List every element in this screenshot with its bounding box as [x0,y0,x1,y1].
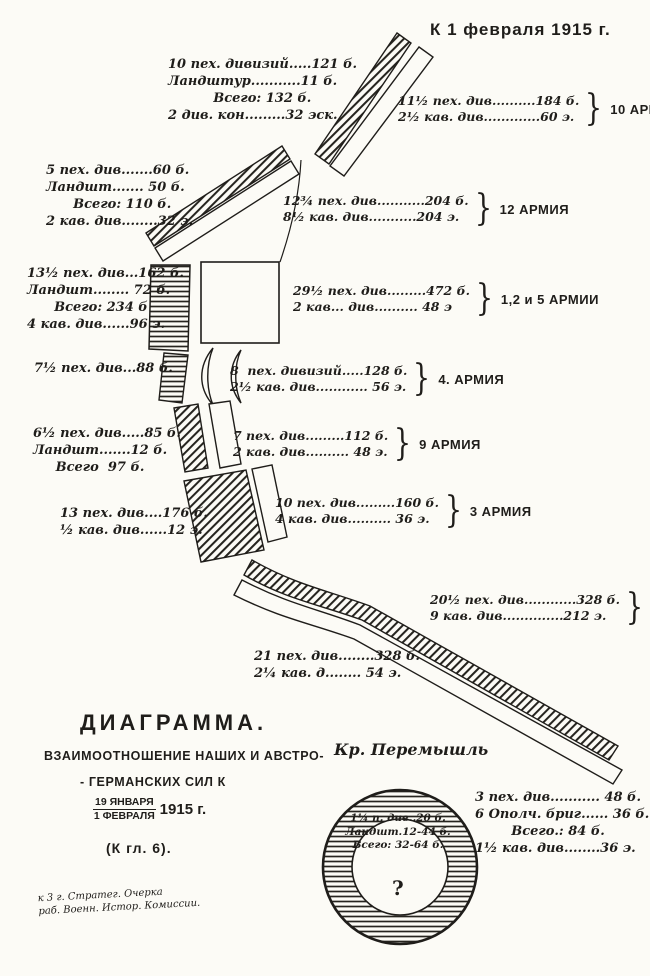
brace: } [626,591,643,625]
force-line: Всего 97 б. [33,459,181,476]
square-white-125 [201,262,279,343]
army-block-10: 11½ пех. див..........184 б.2½ кав. див.… [398,92,650,126]
force-line: Всего: 110 б. [46,196,193,213]
force-line: 5 пех. див.......60 б. [46,162,193,179]
force-line: 11½ пех. див..........184 б. [398,93,579,109]
force-line: Всего: 132 б. [168,90,357,107]
force-line: 2 див. кон.........32 эск. [168,107,357,124]
force-line: 7 пех. див.........112 б. [233,428,388,444]
force-line: Ландшт.12-44 б. [333,826,463,840]
brace: } [585,92,602,126]
force-line: 2 кав. див........32 э. [46,213,193,230]
force-line: Всего: 32-64 б. [333,839,463,853]
force-line: Всего: 234 б [27,299,184,316]
army-forces: 12¾ пех. див...........204 б.8½ кав. див… [283,193,469,225]
force-line: Ландшт....... 50 б. [46,179,193,196]
force-line: 2½ кав. див.............60 э. [398,109,579,125]
army-block-12: 12¾ пех. див...........204 б.8½ кав. див… [283,192,569,226]
brace: } [413,362,430,396]
diagram-page: К 1 февраля 1915 г. 10 пех. дивизий.....… [0,0,650,976]
force-block-w1: 5 пех. див.......60 б.Ландшт....... 50 б… [46,162,193,230]
force-line: 8 пех. дивизий.....128 б. [230,363,407,379]
force-line: 4 кав. див......96 э. [27,316,184,333]
force-line: 20½ пех. див............328 б. [430,592,620,608]
army-block-3: 10 пех. див.........160 б.4 кав. див....… [275,494,532,528]
force-line: 6½ пех. див.....85 б. [33,425,181,442]
army-forces: 10 пех. див.........160 б.4 кав. див....… [275,495,439,527]
date-note: К 1 февраля 1915 г. [430,20,611,40]
force-line: 13½ пех. див...162 б. [27,265,184,282]
fortress-garrison: 1¼ п. див..20 б.Ландшт.12-44 б.Всего: 32… [333,812,463,853]
force-line: Всего.: 84 б. [475,823,649,840]
army-name: 9 АРМИЯ [419,437,481,452]
force-line: 6 Ополч. бриг...... 36 б. [475,806,649,823]
force-line: 10 пех. дивизий.....121 б. [168,56,357,73]
army-forces: 11½ пех. див..........184 б.2½ кав. див.… [398,93,579,125]
force-line: 7½ пех. див...88 б. [34,360,173,377]
brace: } [476,282,493,316]
force-line: 13 пех. див....176 б. [60,505,208,522]
force-block-s6: 21 пех. див........328 б.2¼ кав. д......… [254,648,420,682]
force-line: 29½ пех. див.........472 б. [293,283,470,299]
force-block-besiegers: 3 пех. див........... 48 б.6 Ополч. бриг… [475,789,649,857]
crescent-white-1 [202,348,213,405]
army-block-8: 20½ пех. див............328 б.9 кав. див… [430,591,650,625]
army-forces: 20½ пех. див............328 б.9 кав. див… [430,592,620,624]
date-fraction-top: 19 ЯНВАРЯ [93,796,156,810]
brace: } [445,494,462,528]
force-line: 4 кав. див.......... 36 э. [275,511,439,527]
brace: } [394,427,411,461]
force-line: 1½ кав. див........36 э. [475,840,649,857]
army-block-9: 7 пех. див.........112 б.2 кав. див.....… [233,427,481,461]
force-line: 2 кав. див.......... 48 э. [233,444,388,460]
force-line: 2¼ кав. д........ 54 э. [254,665,420,682]
force-line: 3 пех. див........... 48 б. [475,789,649,806]
force-line: 8½ кав. див...........204 э. [283,209,469,225]
diagram-title: ДИАГРАММА. [80,710,267,736]
fortress-question-mark: ? [392,876,404,900]
force-line: Ландштур...........11 б. [168,73,357,90]
date-year: 1915 г. [160,801,206,818]
army-block-125: 29½ пех. див.........472 б.2 кав... див.… [293,282,599,316]
army-name: 12 АРМИЯ [500,202,569,217]
force-line: 21 пех. див........328 б. [254,648,420,665]
force-block-w5: 13 пех. див....176 б.½ кав. див......12 … [60,505,208,539]
force-line: 2 кав... див.......... 48 э [293,299,470,315]
force-line: 2½ кав. див............ 56 э. [230,379,407,395]
army-name: 4. АРМИЯ [438,372,504,387]
brace: } [475,192,492,226]
force-line: 12¾ пех. див...........204 б. [283,193,469,209]
army-forces: 7 пех. див.........112 б.2 кав. див.....… [233,428,388,460]
date-fraction: 19 ЯНВАРЯ 1 ФЕВРАЛЯ [93,796,156,823]
force-line: 9 кав. див..............212 э. [430,608,620,624]
army-forces: 29½ пех. див.........472 б.2 кав... див.… [293,283,470,315]
army-name: 3 АРМИЯ [470,504,532,519]
force-line: Ландшт........ 72 б. [27,282,184,299]
force-line: Ландшт.......12 б. [33,442,181,459]
army-forces: 8 пех. дивизий.....128 б.2½ кав. див....… [230,363,407,395]
chapter-reference: (К гл. 6). [106,840,172,856]
force-block-w2: 13½ пех. див...162 б.Ландшт........ 72 б… [27,265,184,333]
diagram-subtitle-2: - ГЕРМАНСКИХ СИЛ К [80,775,226,789]
army-name: 10 АРМИЯ [610,102,650,117]
army-name: 1,2 и 5 АРМИИ [501,292,599,307]
force-line: 10 пех. див.........160 б. [275,495,439,511]
date-fraction-bottom: 1 ФЕВРАЛЯ [94,810,155,823]
fortress-title: Кр. Перемышль [334,740,488,759]
force-block-w4: 6½ пех. див.....85 б.Ландшт.......12 б. … [33,425,181,476]
force-block-w3: 7½ пех. див...88 б. [34,360,173,377]
diagram-date: 19 ЯНВАРЯ 1 ФЕВРАЛЯ 1915 г. [93,796,206,823]
army-block-4: 8 пех. дивизий.....128 б.2½ кав. див....… [230,362,504,396]
force-line: 1¼ п. див..20 б. [333,812,463,826]
diagram-subtitle-1: ВЗАИМООТНОШЕНИЕ НАШИХ И АВСТРО- [44,749,324,763]
force-block-nw: 10 пех. дивизий.....121 б.Ландштур......… [168,56,357,124]
force-line: ½ кав. див......12 э. [60,522,208,539]
